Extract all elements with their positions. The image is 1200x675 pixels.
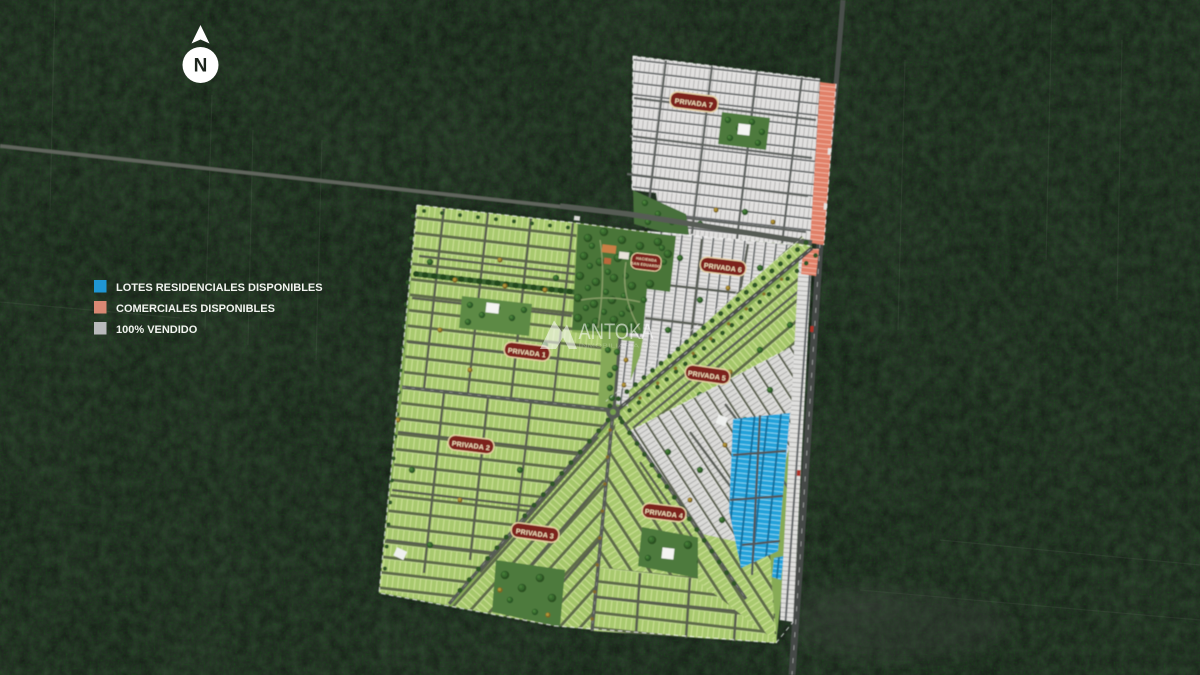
svg-text:INMOBILIARIA MX: INMOBILIARIA MX [579, 344, 656, 350]
svg-text:COMERCIALES DISPONIBLES: COMERCIALES DISPONIBLES [116, 303, 275, 315]
svg-text:N: N [194, 56, 208, 77]
svg-text:LOTES RESIDENCIALES DISPONIBLE: LOTES RESIDENCIALES DISPONIBLES [116, 282, 323, 294]
svg-text:ANTOKA: ANTOKA [579, 319, 654, 344]
svg-text:100% VENDIDO: 100% VENDIDO [116, 324, 198, 336]
